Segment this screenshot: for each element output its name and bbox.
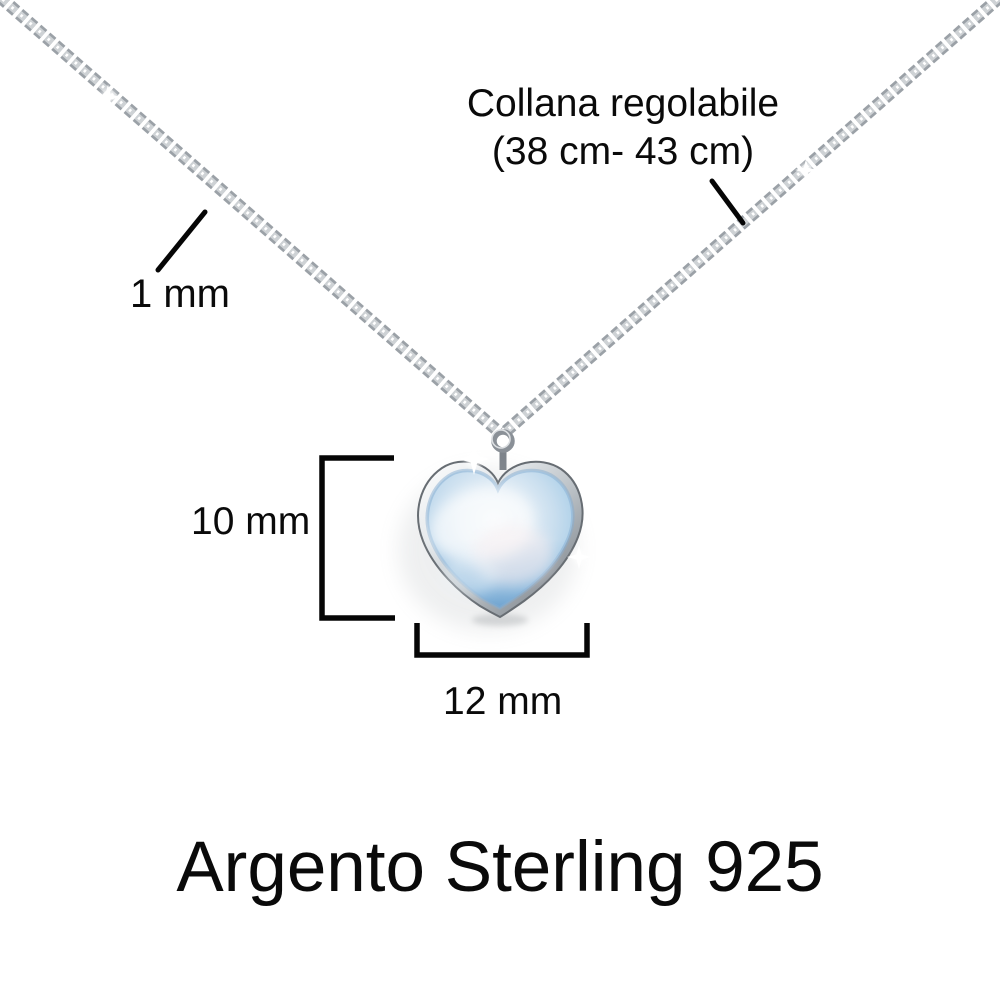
chain-adjustable-label: Collana regolabile (38 cm- 43 cm) [423, 80, 823, 176]
chain-thickness-label: 1 mm [130, 274, 230, 314]
chain-adjustable-label-line1: Collana regolabile [423, 80, 823, 128]
chain-left-strand [0, 0, 499, 432]
pendant-height-bracket [322, 458, 395, 618]
pendant-width-label: 12 mm [443, 682, 562, 721]
pendant-bail [492, 430, 512, 470]
stone-soft-highlight [442, 555, 498, 595]
chain-thickness-leader-line [158, 212, 205, 270]
material-caption: Argento Sterling 925 [0, 832, 1000, 903]
chain-length-leader-line [712, 181, 743, 223]
necklace-product-image: Collana regolabile (38 cm- 43 cm) 1 mm 1… [0, 0, 1000, 1000]
chain-adjustable-label-line2: (38 cm- 43 cm) [423, 128, 823, 176]
chain-right-strand [505, 0, 1000, 432]
pendant-height-label: 10 mm [191, 502, 310, 541]
